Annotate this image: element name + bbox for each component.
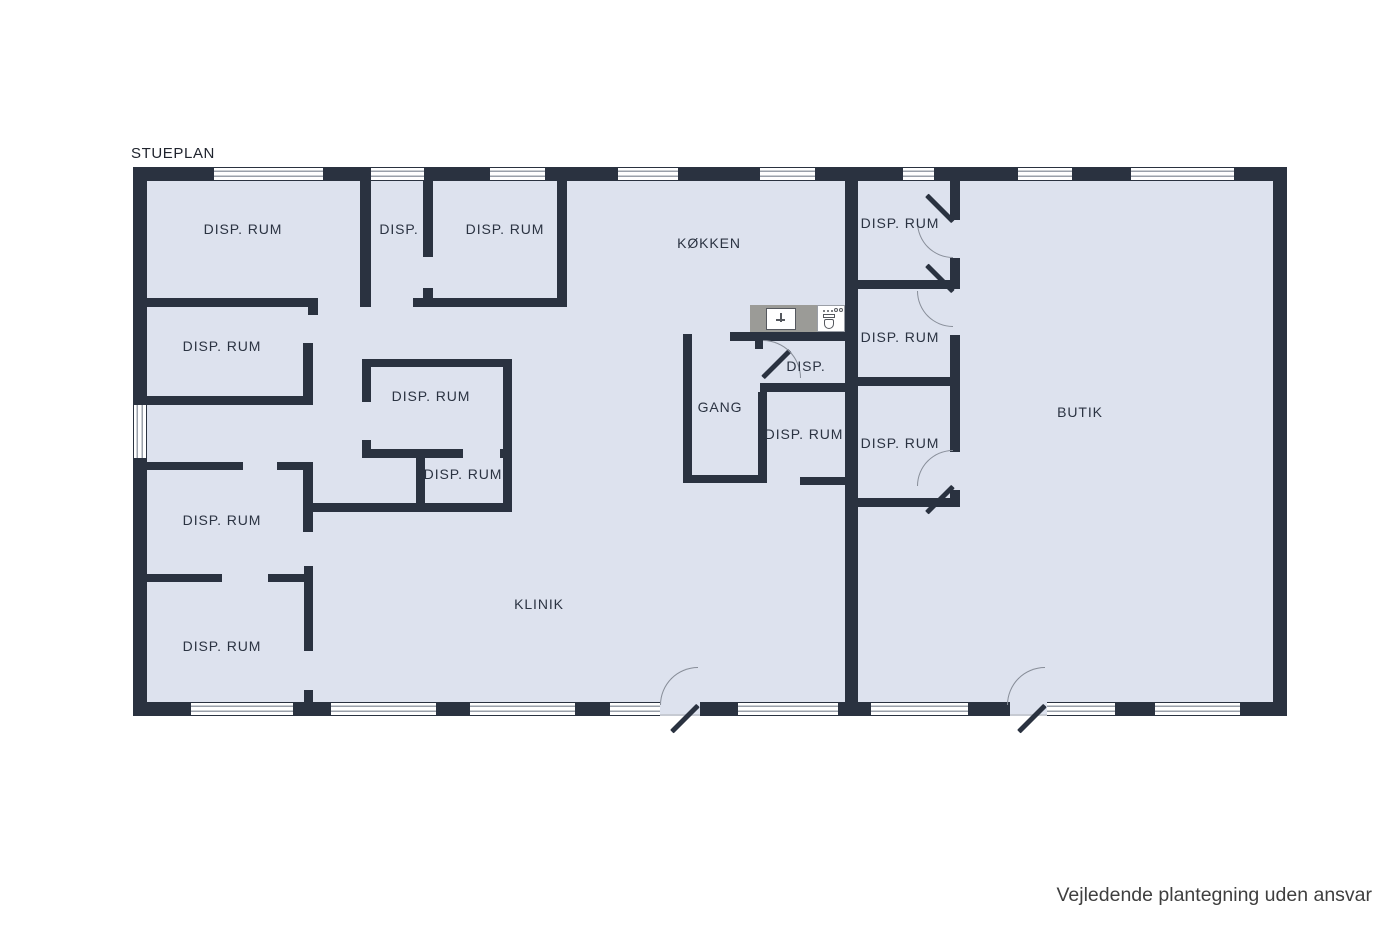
wall-segment (683, 475, 767, 483)
room-label-disp-rum-left-2: DISP. RUM (183, 338, 262, 354)
room-label-disp-small: DISP. (786, 358, 825, 374)
disclaimer-text: Vejledende plantegning uden ansvar (1056, 884, 1372, 907)
room-label-koekken: KØKKEN (677, 235, 741, 251)
fixture-circle (834, 308, 838, 312)
wall-segment (730, 332, 845, 341)
fixture-dot (823, 310, 825, 312)
plan-title: STUEPLAN (131, 145, 215, 162)
window (1018, 168, 1072, 180)
toilet-tank (823, 314, 835, 318)
wall-segment (147, 574, 222, 582)
wall-segment (362, 359, 371, 402)
wall-segment (362, 449, 463, 458)
room-label-disp-rum-center-small: DISP. RUM (424, 466, 503, 482)
wall-segment (362, 359, 512, 367)
wall-segment (303, 343, 313, 404)
wall-segment (1273, 167, 1287, 716)
wall-segment (845, 181, 858, 702)
wall-segment (360, 181, 371, 307)
window (134, 405, 146, 458)
wall-segment (760, 383, 845, 392)
wall-segment (950, 181, 960, 220)
window (760, 168, 815, 180)
wall-segment (413, 298, 567, 307)
window (1131, 168, 1234, 180)
room-label-butik: BUTIK (1057, 404, 1103, 420)
wall-segment (304, 690, 313, 702)
window (214, 168, 323, 180)
wall-segment (845, 377, 960, 386)
wall-segment (305, 503, 512, 512)
window (331, 703, 436, 715)
toilet-bowl (824, 319, 834, 329)
room-label-disp-rum-right-1: DISP. RUM (861, 215, 940, 231)
room-label-disp-rum-right-2: DISP. RUM (861, 329, 940, 345)
fixture-dot (827, 310, 829, 312)
room-label-disp-rum-top-mid: DISP. RUM (466, 221, 545, 237)
wall-segment (423, 181, 433, 257)
wall-segment (303, 462, 313, 532)
window (738, 703, 838, 715)
window (618, 168, 678, 180)
window (191, 703, 293, 715)
faucet-mark (776, 319, 785, 321)
wall-segment (683, 334, 692, 483)
room-label-disp-rum-center-2: DISP. RUM (765, 426, 844, 442)
wall-segment (755, 341, 763, 349)
wall-segment (147, 462, 243, 470)
room-label-disp-rum-top-left: DISP. RUM (204, 221, 283, 237)
room-label-disp-rum-left-4: DISP. RUM (183, 638, 262, 654)
sink-icon (766, 308, 796, 330)
wall-segment (304, 566, 313, 651)
window (1155, 703, 1240, 715)
window (871, 703, 968, 715)
room-label-gang: GANG (698, 399, 743, 415)
wall-segment (503, 359, 512, 508)
room-label-disp-rum-right-3: DISP. RUM (861, 435, 940, 451)
window (490, 168, 545, 180)
window (1047, 703, 1115, 715)
window (371, 168, 424, 180)
window (903, 168, 934, 180)
room-label-disp-top: DISP. (379, 221, 418, 237)
wall-segment (950, 335, 960, 452)
room-label-disp-rum-left-3: DISP. RUM (183, 512, 262, 528)
wall-segment (147, 298, 318, 307)
fixture-dot (831, 310, 833, 312)
floor-plan-page: STUEPLAN DISP. RUM DISP. DISP. RUM KØKKE… (0, 0, 1400, 933)
wall-segment (557, 181, 567, 307)
wall-segment (950, 258, 960, 289)
fixture-circle (839, 308, 843, 312)
window (610, 703, 660, 715)
wall-segment (147, 396, 313, 405)
window (470, 703, 575, 715)
room-label-klinik: KLINIK (514, 596, 564, 612)
toilet-icon (817, 305, 845, 332)
wall-segment (950, 490, 960, 507)
room-label-disp-rum-center: DISP. RUM (392, 388, 471, 404)
wall-segment (308, 307, 318, 315)
wall-segment (800, 477, 847, 485)
